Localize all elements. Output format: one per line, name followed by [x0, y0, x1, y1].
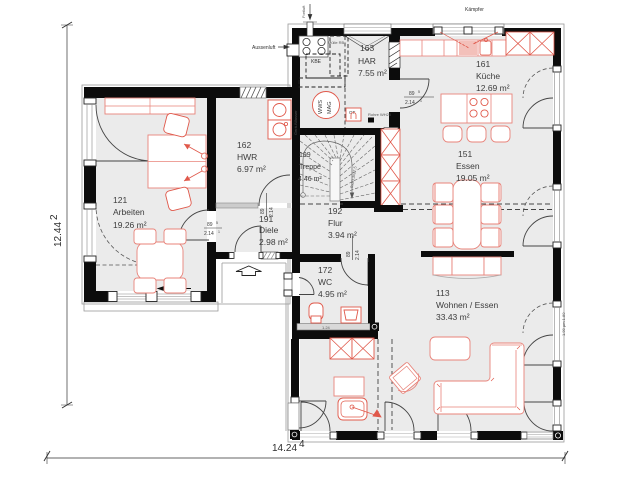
svg-text:MAG: MAG — [327, 101, 333, 114]
svg-text:1.99 µm 1.80: 1.99 µm 1.80 — [561, 312, 566, 336]
svg-text:Wohnen / Essen: Wohnen / Essen — [436, 300, 498, 310]
svg-text:2.98 m²: 2.98 m² — [259, 237, 288, 247]
svg-text:19.26 m²: 19.26 m² — [113, 220, 147, 230]
svg-text:2: 2 — [49, 214, 60, 220]
svg-text:113: 113 — [436, 288, 450, 298]
svg-text:Arbeiten: Arbeiten — [113, 207, 145, 217]
svg-text:6.97 m²: 6.97 m² — [237, 164, 266, 174]
svg-text:Flur: Flur — [328, 218, 343, 228]
svg-text:162: 162 — [237, 140, 251, 150]
svg-text:Fortluft: Fortluft — [301, 5, 306, 18]
svg-text:Kämpfer: Kämpfer — [465, 7, 484, 13]
svg-text:161: 161 — [476, 59, 490, 69]
svg-text:163: 163 — [360, 43, 374, 53]
svg-text:2.14: 2.14 — [269, 207, 275, 217]
svg-text:12.69 m²: 12.69 m² — [476, 83, 510, 93]
svg-text:Rohre WH20: Rohre WH20 — [368, 112, 392, 117]
svg-text:Küche: Küche — [476, 71, 500, 81]
svg-text:172: 172 — [318, 265, 332, 275]
svg-text:Gerä./Wasser: Gerä./Wasser — [293, 110, 298, 135]
svg-text:KBE: KBE — [311, 59, 322, 65]
svg-text:1: 1 — [218, 230, 220, 234]
svg-text:89: 89 — [260, 208, 266, 214]
svg-text:Essen: Essen — [456, 161, 480, 171]
svg-text:WWS: WWS — [318, 100, 324, 114]
svg-text:4: 4 — [299, 439, 305, 450]
svg-text:2.14: 2.14 — [405, 100, 415, 106]
svg-text:89: 89 — [207, 222, 213, 228]
svg-text:2.14: 2.14 — [355, 250, 361, 260]
svg-text:89: 89 — [409, 91, 415, 97]
svg-text:1.24: 1.24 — [322, 325, 331, 330]
svg-text:192: 192 — [328, 206, 342, 216]
svg-text:5: 5 — [418, 90, 420, 94]
svg-text:Aussenluft: Aussenluft — [252, 45, 276, 51]
svg-text:HAR: HAR — [358, 56, 376, 66]
svg-text:HWR: HWR — [237, 152, 257, 162]
svg-text:Treppe: Treppe — [299, 164, 321, 171]
svg-text:5: 5 — [216, 221, 218, 225]
svg-text:Diele: Diele — [259, 225, 279, 235]
svg-text:Mülle RB: Mülle RB — [328, 40, 345, 45]
svg-text:12.44: 12.44 — [53, 222, 64, 247]
svg-text:19.05 m²: 19.05 m² — [456, 173, 490, 183]
svg-text:2.14: 2.14 — [204, 231, 214, 237]
svg-text:WC: WC — [318, 277, 332, 287]
svg-text:4.46 m²: 4.46 m² — [298, 176, 322, 183]
svg-text:151: 151 — [458, 149, 472, 159]
svg-text:7.55 m²: 7.55 m² — [358, 68, 387, 78]
svg-text:1: 1 — [420, 99, 422, 103]
svg-text:4.95 m²: 4.95 m² — [318, 289, 347, 299]
svg-text:121: 121 — [113, 195, 127, 205]
svg-text:14.24: 14.24 — [272, 443, 297, 454]
svg-text:89: 89 — [346, 251, 352, 257]
svg-text:199: 199 — [299, 152, 311, 159]
svg-text:33.43 m²: 33.43 m² — [436, 312, 470, 322]
